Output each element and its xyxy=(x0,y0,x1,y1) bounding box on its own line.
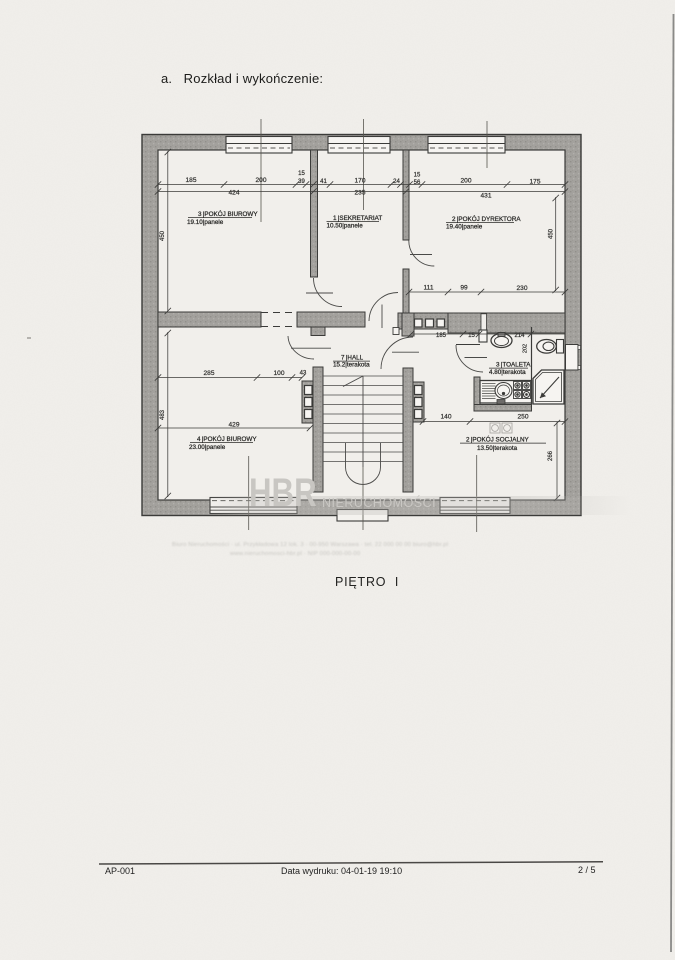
svg-text:23.00|panele: 23.00|panele xyxy=(189,444,226,451)
svg-text:39: 39 xyxy=(298,179,305,185)
svg-text:140: 140 xyxy=(440,414,451,421)
svg-text:15: 15 xyxy=(468,333,475,339)
svg-text:19.10|panele: 19.10|panele xyxy=(187,219,224,226)
svg-text:15.2|terakota: 15.2|terakota xyxy=(333,362,370,369)
svg-text:3 |POKÓJ BIUROWY: 3 |POKÓJ BIUROWY xyxy=(198,209,258,218)
svg-text:15: 15 xyxy=(414,173,421,179)
svg-text:230: 230 xyxy=(516,285,527,292)
svg-text:2 |POKÓJ SOCJALNY: 2 |POKÓJ SOCJALNY xyxy=(466,435,530,444)
svg-text:10.50|panele: 10.50|panele xyxy=(327,223,364,230)
svg-text:285: 285 xyxy=(203,370,214,377)
svg-text:450: 450 xyxy=(549,228,555,239)
svg-text:111: 111 xyxy=(423,285,433,292)
svg-text:56: 56 xyxy=(414,180,421,186)
svg-text:24: 24 xyxy=(393,179,400,185)
svg-text:424: 424 xyxy=(228,190,239,197)
svg-text:15: 15 xyxy=(298,171,305,177)
svg-text:100: 100 xyxy=(273,370,284,377)
svg-text:483: 483 xyxy=(160,409,166,420)
svg-text:170: 170 xyxy=(354,178,365,185)
svg-text:1 |SEKRETARIAT: 1 |SEKRETARIAT xyxy=(333,215,382,222)
svg-text:202: 202 xyxy=(523,344,529,353)
svg-text:99: 99 xyxy=(460,285,468,292)
svg-text:3 |TOALETA: 3 |TOALETA xyxy=(496,362,531,369)
svg-text:7 |HALL: 7 |HALL xyxy=(341,355,364,362)
svg-text:13.50|terakota: 13.50|terakota xyxy=(477,445,518,452)
svg-text:185: 185 xyxy=(436,333,447,339)
svg-text:4 |POKÓJ BIUROWY: 4 |POKÓJ BIUROWY xyxy=(197,434,257,443)
svg-text:200: 200 xyxy=(460,178,471,185)
svg-text:450: 450 xyxy=(160,230,166,241)
svg-text:185: 185 xyxy=(185,177,196,184)
svg-text:429: 429 xyxy=(228,422,239,429)
svg-text:266: 266 xyxy=(548,450,554,461)
svg-text:4.80|terakota: 4.80|terakota xyxy=(489,369,526,376)
svg-text:2 |POKÓJ DYREKTORA: 2 |POKÓJ DYREKTORA xyxy=(452,214,521,223)
svg-text:235: 235 xyxy=(354,190,365,197)
svg-text:250: 250 xyxy=(517,414,528,421)
svg-text:431: 431 xyxy=(480,193,491,200)
svg-text:43: 43 xyxy=(300,371,307,377)
svg-text:19.40|panele: 19.40|panele xyxy=(446,224,483,231)
svg-text:214: 214 xyxy=(514,333,525,339)
svg-text:41: 41 xyxy=(320,179,327,185)
svg-text:200: 200 xyxy=(255,177,266,184)
svg-text:175: 175 xyxy=(529,179,540,186)
